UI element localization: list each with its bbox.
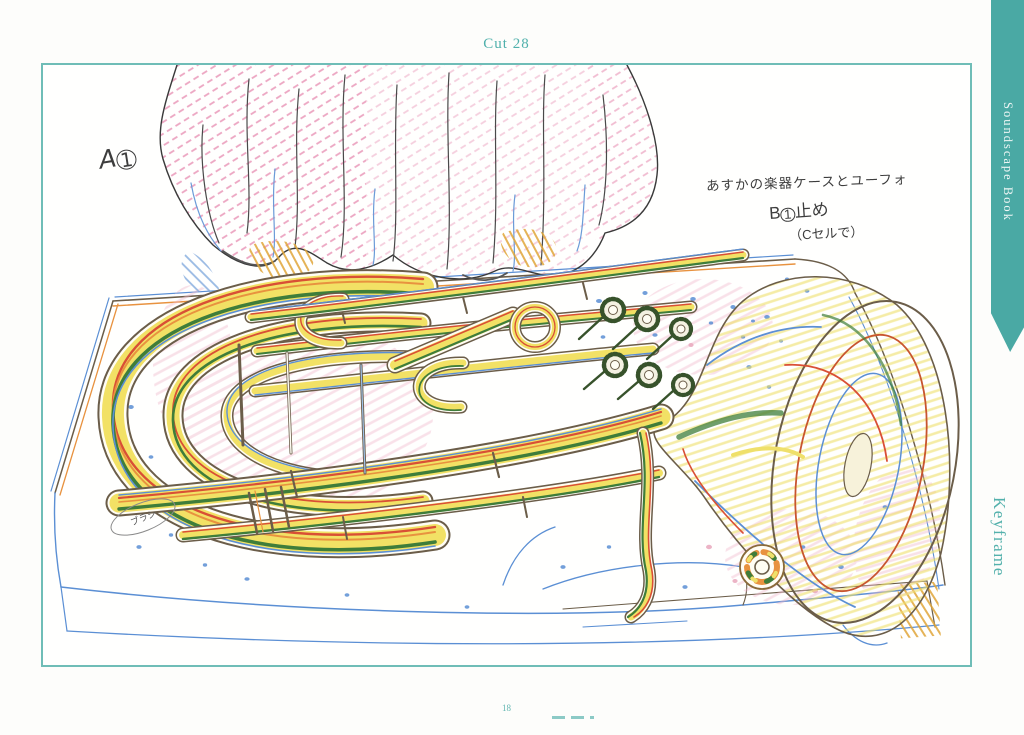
cel-label-circled-number: 1 bbox=[115, 149, 138, 172]
spine-ribbon: Soundscape Book bbox=[991, 0, 1024, 352]
production-note-line2: B1止め bbox=[768, 195, 829, 224]
note-line2-letter: B bbox=[769, 203, 782, 223]
skirt-sketch bbox=[151, 65, 668, 293]
section-title-vertical: Keyframe bbox=[989, 497, 1009, 657]
bottom-tick-mark bbox=[552, 716, 594, 719]
series-title-vertical: Soundscape Book bbox=[1000, 102, 1015, 222]
mouthpiece bbox=[740, 545, 784, 589]
keyframe-drawing: ブラシ bbox=[43, 65, 970, 665]
cel-label-letter: A bbox=[97, 143, 118, 174]
page-number: 18 bbox=[41, 703, 972, 713]
cut-number-label: Cut 28 bbox=[41, 36, 972, 53]
production-note-line3: （Cセルで） bbox=[789, 221, 864, 244]
note-line2-text: 止め bbox=[794, 200, 829, 221]
euphonium-sketch bbox=[113, 249, 970, 639]
leadpipe bbox=[628, 433, 653, 617]
note-line2-circled-number: 1 bbox=[780, 207, 795, 222]
cel-label: A1 bbox=[97, 140, 138, 174]
keyframe-frame: ブラシ A1 bbox=[41, 63, 972, 667]
book-page: Cut 28 bbox=[0, 0, 1024, 735]
